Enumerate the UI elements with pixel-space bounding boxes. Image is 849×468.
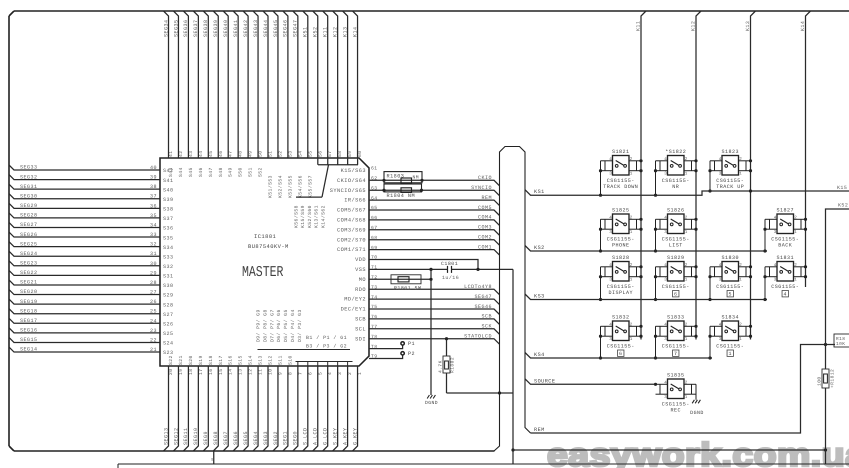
svg-text:44: 44 xyxy=(198,151,204,157)
svg-text:SEG8: SEG8 xyxy=(213,431,219,445)
svg-text:1: 1 xyxy=(630,171,633,176)
svg-text:1: 1 xyxy=(357,372,363,375)
svg-text:SEG23: SEG23 xyxy=(20,261,37,267)
svg-text:REC: REC xyxy=(671,408,681,414)
svg-text:SEG19: SEG19 xyxy=(20,299,37,305)
svg-text:4: 4 xyxy=(719,323,722,328)
svg-text:K15/S59: K15/S59 xyxy=(300,205,306,228)
svg-text:STATOLCD: STATOLCD xyxy=(464,334,492,340)
svg-text:*S1822: *S1822 xyxy=(665,149,686,155)
svg-text:SEG13: SEG13 xyxy=(163,428,169,445)
svg-text:40: 40 xyxy=(150,165,157,171)
svg-text:D7/ P7/ G7: D7/ P7/ G7 xyxy=(269,309,275,342)
svg-text:SEG14: SEG14 xyxy=(20,347,37,353)
svg-text:3: 3 xyxy=(609,277,612,282)
svg-text:S.KEY: S.KEY xyxy=(332,428,338,445)
svg-text:K51: K51 xyxy=(303,27,309,37)
svg-text:COM2/S70: COM2/S70 xyxy=(337,237,366,243)
svg-text:4: 4 xyxy=(609,216,612,221)
svg-text:SCB: SCB xyxy=(482,314,492,320)
svg-text:54: 54 xyxy=(297,151,303,157)
svg-text:KS2: KS2 xyxy=(534,245,545,251)
svg-text:S16: S16 xyxy=(228,355,234,365)
svg-text:S38: S38 xyxy=(163,207,173,213)
svg-text:CSG1155-: CSG1155- xyxy=(716,344,744,350)
svg-text:SEG11: SEG11 xyxy=(183,428,189,445)
svg-text:1: 1 xyxy=(794,277,797,282)
svg-text:1: 1 xyxy=(739,337,742,342)
svg-text:C1801: C1801 xyxy=(441,261,458,267)
svg-text:2: 2 xyxy=(630,323,633,328)
svg-text:S26: S26 xyxy=(163,321,173,327)
svg-text:2: 2 xyxy=(794,216,797,221)
svg-text:SEG17: SEG17 xyxy=(20,318,37,324)
svg-text:K51/S53: K51/S53 xyxy=(268,175,274,198)
svg-text:4.7K: 4.7K xyxy=(438,360,444,373)
svg-text:31: 31 xyxy=(150,251,157,257)
svg-text:3: 3 xyxy=(664,337,667,342)
svg-text:13: 13 xyxy=(238,369,244,375)
svg-text:S36: S36 xyxy=(163,226,173,232)
svg-text:4: 4 xyxy=(784,292,787,298)
svg-text:S49: S49 xyxy=(228,167,234,177)
svg-text:SCB: SCB xyxy=(355,317,366,323)
svg-text:4: 4 xyxy=(664,263,667,268)
svg-text:S13: S13 xyxy=(258,355,264,365)
svg-text:1: 1 xyxy=(685,395,688,400)
svg-text:2: 2 xyxy=(739,157,742,162)
svg-text:30: 30 xyxy=(150,261,157,267)
svg-text:S.LCD: S.LCD xyxy=(303,428,309,445)
svg-text:47: 47 xyxy=(228,151,234,157)
svg-text:COM2: COM2 xyxy=(478,235,492,241)
svg-text:IC1801: IC1801 xyxy=(254,233,276,240)
svg-text:2: 2 xyxy=(630,216,633,221)
svg-text:S1832: S1832 xyxy=(612,315,629,321)
svg-text:CSG1155-: CSG1155- xyxy=(716,284,744,290)
svg-text:4: 4 xyxy=(719,263,722,268)
svg-text:55: 55 xyxy=(307,151,313,157)
svg-text:CKIO/S64: CKIO/S64 xyxy=(337,178,366,184)
svg-text:KS3: KS3 xyxy=(534,294,545,300)
svg-text:S1828: S1828 xyxy=(612,255,629,261)
svg-text:RDO: RDO xyxy=(355,287,366,293)
svg-text:SEG12: SEG12 xyxy=(173,428,179,445)
svg-text:S45: S45 xyxy=(188,167,194,177)
svg-text:6: 6 xyxy=(619,351,622,357)
svg-text:1: 1 xyxy=(739,277,742,282)
svg-text:57: 57 xyxy=(327,151,333,157)
svg-text:58: 58 xyxy=(337,151,343,157)
svg-text:46: 46 xyxy=(218,151,224,157)
svg-text:3: 3 xyxy=(774,277,777,282)
svg-text:SEG44: SEG44 xyxy=(263,20,269,37)
svg-text:SEG3: SEG3 xyxy=(263,431,269,445)
svg-text:SEG18: SEG18 xyxy=(20,308,37,314)
svg-text:SEG34: SEG34 xyxy=(163,20,169,37)
svg-text:14: 14 xyxy=(228,369,234,375)
svg-text:S10: S10 xyxy=(287,355,293,365)
svg-text:SEG36: SEG36 xyxy=(183,20,189,37)
svg-text:S51: S51 xyxy=(248,167,254,177)
svg-text:2: 2 xyxy=(685,157,688,162)
svg-text:32: 32 xyxy=(150,242,157,248)
svg-text:20: 20 xyxy=(168,369,174,375)
svg-text:S48: S48 xyxy=(218,167,224,177)
svg-text:3: 3 xyxy=(609,337,612,342)
svg-text:5: 5 xyxy=(729,292,732,298)
svg-text:SEG38: SEG38 xyxy=(203,20,209,37)
svg-text:SEG45: SEG45 xyxy=(273,20,279,37)
svg-text:SEG35: SEG35 xyxy=(173,20,179,37)
svg-text:D4/ P4/ G4: D4/ P4/ G4 xyxy=(290,309,296,342)
svg-text:S14: S14 xyxy=(248,355,254,365)
svg-text:LCDTo4Y8: LCDTo4Y8 xyxy=(464,284,492,290)
svg-text:DISPLAY: DISPLAY xyxy=(609,290,633,296)
svg-text:1: 1 xyxy=(794,230,797,235)
svg-text:SEG21: SEG21 xyxy=(20,280,37,286)
svg-text:CSG1155-: CSG1155- xyxy=(607,344,635,350)
svg-text:R1804 NM: R1804 NM xyxy=(387,193,416,199)
svg-text:28: 28 xyxy=(150,280,157,286)
svg-text:53: 53 xyxy=(287,151,293,157)
svg-text:CSG1155-: CSG1155- xyxy=(662,284,690,290)
svg-text:CSG1155-: CSG1155- xyxy=(662,344,690,350)
svg-text:3: 3 xyxy=(719,277,722,282)
svg-text:7: 7 xyxy=(297,372,303,375)
svg-text:S1835: S1835 xyxy=(667,373,684,379)
svg-text:S27: S27 xyxy=(163,312,173,318)
svg-text:K14: K14 xyxy=(352,27,358,37)
svg-text:S1829: S1829 xyxy=(667,255,684,261)
svg-text:S1831: S1831 xyxy=(777,255,794,261)
svg-text:3: 3 xyxy=(337,372,343,375)
svg-text:SEG0: SEG0 xyxy=(293,431,299,445)
svg-text:SEG43: SEG43 xyxy=(253,20,259,37)
svg-text:NR: NR xyxy=(672,184,679,190)
svg-text:SEG31: SEG31 xyxy=(20,184,37,190)
svg-text:SEG39: SEG39 xyxy=(213,20,219,37)
svg-text:SEG7: SEG7 xyxy=(223,431,229,445)
svg-text:A.LCD: A.LCD xyxy=(313,428,319,445)
svg-text:SEG32: SEG32 xyxy=(20,174,37,180)
svg-text:3: 3 xyxy=(664,171,667,176)
svg-text:38: 38 xyxy=(150,184,157,190)
svg-text:34: 34 xyxy=(150,222,157,228)
svg-text:SOURCE: SOURCE xyxy=(534,379,555,385)
svg-text:S28: S28 xyxy=(163,302,173,308)
svg-text:K13/S61: K13/S61 xyxy=(314,205,320,228)
svg-text:SCL: SCL xyxy=(355,326,366,332)
svg-text:SEG20: SEG20 xyxy=(20,289,37,295)
svg-text:SYNCIO: SYNCIO xyxy=(471,185,492,191)
svg-text:LIST: LIST xyxy=(669,243,683,249)
svg-text:COM5/S67: COM5/S67 xyxy=(337,208,366,214)
svg-text:S: S xyxy=(211,458,214,463)
svg-text:R1802: R1802 xyxy=(450,357,456,373)
svg-text:K52/S60: K52/S60 xyxy=(307,205,313,228)
svg-text:S1826: S1826 xyxy=(667,208,684,214)
svg-text:VDD: VDD xyxy=(355,257,366,263)
svg-text:S1823: S1823 xyxy=(722,149,739,155)
svg-text:P2: P2 xyxy=(408,351,415,357)
svg-text:P1: P1 xyxy=(408,341,415,347)
svg-text:3: 3 xyxy=(664,277,667,282)
svg-text:SEG2: SEG2 xyxy=(273,431,279,445)
svg-text:17: 17 xyxy=(198,369,204,375)
svg-text:VSS: VSS xyxy=(355,267,366,273)
svg-text:K14: K14 xyxy=(800,21,806,31)
svg-text:K55/S57: K55/S57 xyxy=(307,175,313,198)
svg-text:SEG26: SEG26 xyxy=(20,232,37,238)
svg-text:COM5: COM5 xyxy=(478,205,492,211)
svg-text:SEG27: SEG27 xyxy=(20,222,37,228)
svg-text:6: 6 xyxy=(307,372,313,375)
svg-text:D6/ P6/ G6: D6/ P6/ G6 xyxy=(276,309,282,342)
svg-text:K52/S54: K52/S54 xyxy=(277,175,283,198)
svg-text:19: 19 xyxy=(178,369,184,375)
svg-text:4: 4 xyxy=(664,157,667,162)
svg-text:4: 4 xyxy=(609,157,612,162)
svg-text:1: 1 xyxy=(685,230,688,235)
svg-text:K15/S63: K15/S63 xyxy=(341,168,366,174)
svg-text:41: 41 xyxy=(168,151,174,157)
svg-text:SEG28: SEG28 xyxy=(20,213,37,219)
svg-text:4: 4 xyxy=(609,323,612,328)
svg-text:KS1: KS1 xyxy=(534,189,545,195)
svg-text:K11: K11 xyxy=(636,21,642,31)
svg-text:S20: S20 xyxy=(188,355,194,365)
svg-text:CSG1155-: CSG1155- xyxy=(771,284,799,290)
svg-text:REM: REM xyxy=(534,427,545,433)
svg-text:D5/ P5/ G5: D5/ P5/ G5 xyxy=(283,309,289,342)
svg-text:18: 18 xyxy=(188,369,194,375)
svg-text:9: 9 xyxy=(277,372,283,375)
svg-text:S11: S11 xyxy=(277,355,283,365)
svg-text:35: 35 xyxy=(150,213,157,219)
svg-text:3: 3 xyxy=(719,171,722,176)
svg-text:4: 4 xyxy=(664,323,667,328)
svg-text:1: 1 xyxy=(630,277,633,282)
svg-text:KS4: KS4 xyxy=(534,352,545,358)
svg-text:S47: S47 xyxy=(208,167,214,177)
svg-text:BU87540KV-M: BU87540KV-M xyxy=(248,243,289,250)
svg-text:3: 3 xyxy=(774,230,777,235)
svg-text:K12: K12 xyxy=(691,21,697,31)
svg-text:2: 2 xyxy=(739,263,742,268)
svg-text:6: 6 xyxy=(674,292,677,298)
svg-text:S1833: S1833 xyxy=(667,315,684,321)
svg-text:3: 3 xyxy=(719,337,722,342)
svg-text:SEG1: SEG1 xyxy=(283,431,289,445)
svg-text:S41: S41 xyxy=(163,178,173,184)
svg-text:48: 48 xyxy=(238,151,244,157)
svg-text:D8/ P8/ G8: D8/ P8/ G8 xyxy=(262,309,268,342)
svg-text:S34: S34 xyxy=(163,245,173,251)
svg-text:SEG10: SEG10 xyxy=(193,428,199,445)
svg-text:SYNCIO/S65: SYNCIO/S65 xyxy=(330,188,366,194)
svg-text:S21: S21 xyxy=(178,355,184,365)
svg-text:21: 21 xyxy=(150,347,157,353)
svg-text:51: 51 xyxy=(268,151,274,157)
svg-text:1: 1 xyxy=(630,337,633,342)
svg-text:36: 36 xyxy=(150,203,157,209)
svg-text:A.KEY: A.KEY xyxy=(342,428,348,445)
svg-text:G.KEY: G.KEY xyxy=(352,428,358,445)
svg-text:42: 42 xyxy=(178,151,184,157)
svg-text:S22: S22 xyxy=(168,355,174,365)
svg-text:25: 25 xyxy=(150,309,157,315)
svg-text:11: 11 xyxy=(258,369,264,375)
svg-text:1: 1 xyxy=(685,337,688,342)
svg-text:S18: S18 xyxy=(208,355,214,365)
svg-text:K13: K13 xyxy=(745,21,751,31)
svg-text:10: 10 xyxy=(268,369,274,375)
svg-text:S24: S24 xyxy=(163,341,173,347)
svg-text:59: 59 xyxy=(347,151,353,157)
svg-text:SEG24: SEG24 xyxy=(20,251,37,257)
svg-text:MASTER: MASTER xyxy=(242,264,284,281)
svg-text:S31: S31 xyxy=(163,274,173,280)
svg-text:TRACK DOWN: TRACK DOWN xyxy=(603,184,638,190)
svg-text:22: 22 xyxy=(150,337,157,343)
svg-text:COM1: COM1 xyxy=(478,244,492,250)
svg-text:S12: S12 xyxy=(268,355,274,365)
svg-text:SEG42: SEG42 xyxy=(243,20,249,37)
svg-text:1: 1 xyxy=(630,230,633,235)
svg-text:S50: S50 xyxy=(238,167,244,177)
svg-text:K56/S58: K56/S58 xyxy=(294,205,300,228)
svg-text:39: 39 xyxy=(150,175,157,181)
svg-text:2: 2 xyxy=(685,263,688,268)
svg-text:COM3/S69: COM3/S69 xyxy=(337,227,366,233)
svg-text:S19: S19 xyxy=(198,355,204,365)
svg-text:S35: S35 xyxy=(163,235,173,241)
svg-text:4: 4 xyxy=(719,157,722,162)
svg-text:S30: S30 xyxy=(163,283,173,289)
svg-text:33: 33 xyxy=(150,232,157,238)
svg-text:29: 29 xyxy=(150,270,157,276)
svg-text:+R1812: +R1812 xyxy=(830,369,836,388)
svg-text:3: 3 xyxy=(664,230,667,235)
svg-text:K53/S55: K53/S55 xyxy=(287,175,293,198)
svg-text:SEG30: SEG30 xyxy=(20,193,37,199)
svg-text:K15: K15 xyxy=(837,185,847,191)
svg-text:S39: S39 xyxy=(163,197,173,203)
svg-text:S1821: S1821 xyxy=(612,149,629,155)
svg-text:K54/S56: K54/S56 xyxy=(297,175,303,198)
svg-text:4: 4 xyxy=(664,381,667,386)
svg-text:G.LCD: G.LCD xyxy=(323,428,329,445)
svg-text:COM4: COM4 xyxy=(478,215,492,221)
svg-text:COM1/S71: COM1/S71 xyxy=(337,247,366,253)
svg-text:SEG22: SEG22 xyxy=(20,270,37,276)
svg-text:2: 2 xyxy=(347,372,353,375)
svg-text:2: 2 xyxy=(630,263,633,268)
svg-text:2: 2 xyxy=(685,323,688,328)
svg-text:4: 4 xyxy=(327,372,333,375)
svg-text:27: 27 xyxy=(150,290,157,296)
svg-text:PHONE: PHONE xyxy=(612,243,629,249)
svg-text:S17: S17 xyxy=(218,355,224,365)
svg-text:MD/EY2: MD/EY2 xyxy=(344,297,366,303)
svg-text:100: 100 xyxy=(817,376,823,386)
svg-text:S1825: S1825 xyxy=(612,208,629,214)
svg-text:S40: S40 xyxy=(163,187,173,193)
svg-text:60: 60 xyxy=(357,151,363,157)
svg-text:S1827: S1827 xyxy=(777,208,794,214)
svg-text:SEG6: SEG6 xyxy=(233,431,239,445)
svg-text:S33: S33 xyxy=(163,254,173,260)
svg-text:CKIO: CKIO xyxy=(478,175,492,181)
svg-text:10K: 10K xyxy=(836,342,845,347)
svg-text:52: 52 xyxy=(277,151,283,157)
svg-text:SEG29: SEG29 xyxy=(20,203,37,209)
svg-text:B3 / P3 / G2: B3 / P3 / G2 xyxy=(306,344,347,350)
svg-text:R1801 5M: R1801 5M xyxy=(394,285,421,291)
svg-text:K52: K52 xyxy=(838,203,848,209)
svg-text:REM: REM xyxy=(482,195,492,201)
svg-text:4: 4 xyxy=(774,263,777,268)
svg-text:8: 8 xyxy=(287,372,293,375)
svg-text:BACK: BACK xyxy=(778,243,792,249)
svg-text:S32: S32 xyxy=(163,264,173,270)
svg-text:S1834: S1834 xyxy=(722,315,739,321)
svg-text:S43: S43 xyxy=(168,167,174,177)
svg-text:16: 16 xyxy=(208,369,214,375)
svg-text:SEG15: SEG15 xyxy=(20,337,37,343)
svg-text:4: 4 xyxy=(774,216,777,221)
svg-text:S52: S52 xyxy=(258,167,264,177)
svg-text:4: 4 xyxy=(609,263,612,268)
svg-text:45: 45 xyxy=(208,151,214,157)
svg-text:SEG33: SEG33 xyxy=(20,165,37,171)
svg-text:NM: NM xyxy=(413,174,420,180)
svg-text:SEG46: SEG46 xyxy=(283,20,289,37)
svg-text:2: 2 xyxy=(685,381,688,386)
svg-text:B1 / P1 / G1: B1 / P1 / G1 xyxy=(306,335,347,341)
svg-text:DGND: DGND xyxy=(690,410,704,416)
svg-text:7: 7 xyxy=(674,351,677,357)
svg-text:43: 43 xyxy=(188,151,194,157)
svg-text:K11: K11 xyxy=(323,27,329,37)
svg-text:1: 1 xyxy=(685,277,688,282)
svg-text:SEG47: SEG47 xyxy=(293,20,299,37)
svg-text:S15: S15 xyxy=(238,355,244,365)
svg-text:2: 2 xyxy=(794,263,797,268)
svg-text:37: 37 xyxy=(150,194,157,200)
svg-text:S29: S29 xyxy=(163,293,173,299)
svg-text:R1803: R1803 xyxy=(387,174,405,180)
svg-text:1u/16: 1u/16 xyxy=(442,275,459,281)
svg-text:SEG37: SEG37 xyxy=(193,20,199,37)
svg-text:SEG9: SEG9 xyxy=(203,431,209,445)
svg-text:K14/S62: K14/S62 xyxy=(320,205,326,228)
svg-text:SEG40: SEG40 xyxy=(223,20,229,37)
svg-text:SEG16: SEG16 xyxy=(20,328,37,334)
svg-text:D9/ P9/ G9: D9/ P9/ G9 xyxy=(256,309,262,342)
svg-text:SEG25: SEG25 xyxy=(20,241,37,247)
svg-text:56: 56 xyxy=(317,151,323,157)
svg-text:3: 3 xyxy=(609,171,612,176)
svg-text:SEG46: SEG46 xyxy=(475,304,492,310)
svg-text:S46: S46 xyxy=(198,167,204,177)
svg-text:12: 12 xyxy=(248,369,254,375)
svg-text:S1830: S1830 xyxy=(722,255,739,261)
svg-text:2: 2 xyxy=(630,157,633,162)
svg-text:SDI: SDI xyxy=(355,336,366,342)
svg-text:SEG4: SEG4 xyxy=(253,431,259,445)
